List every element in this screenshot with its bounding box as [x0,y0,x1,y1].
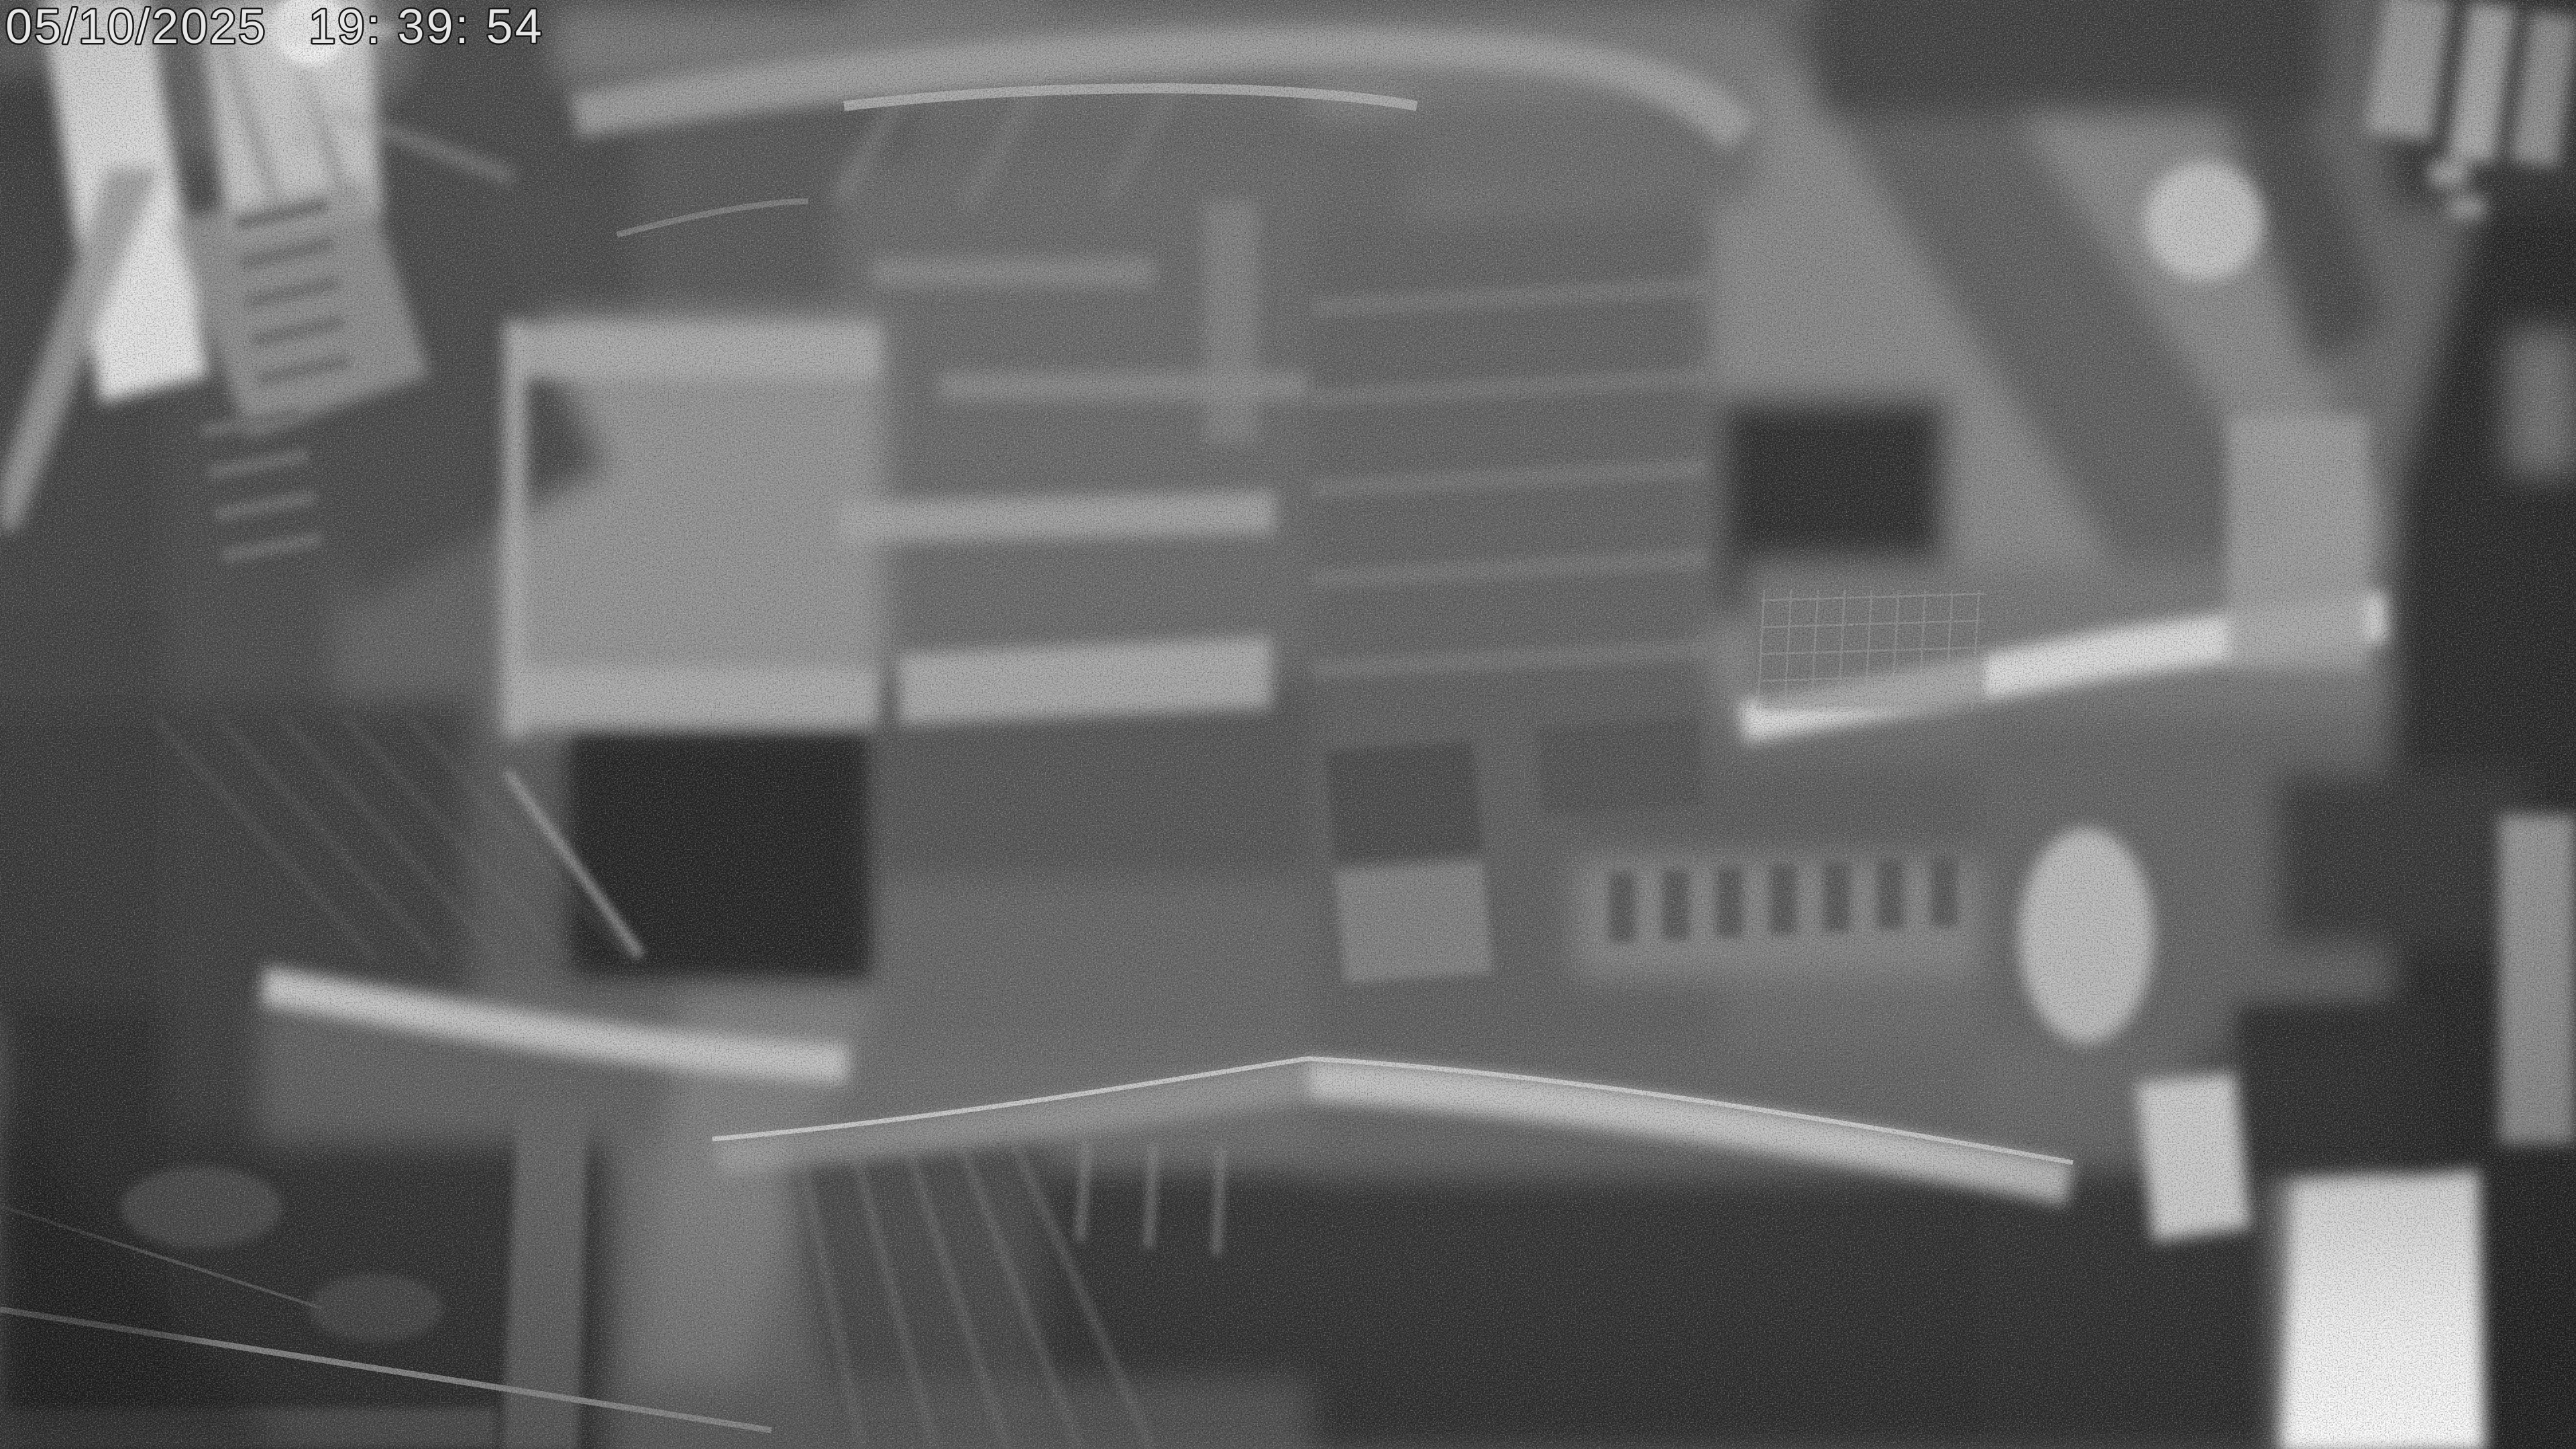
svg-text:05/10/2025 19: 39: 54: 05/10/2025 19: 39: 54 [5,0,544,54]
